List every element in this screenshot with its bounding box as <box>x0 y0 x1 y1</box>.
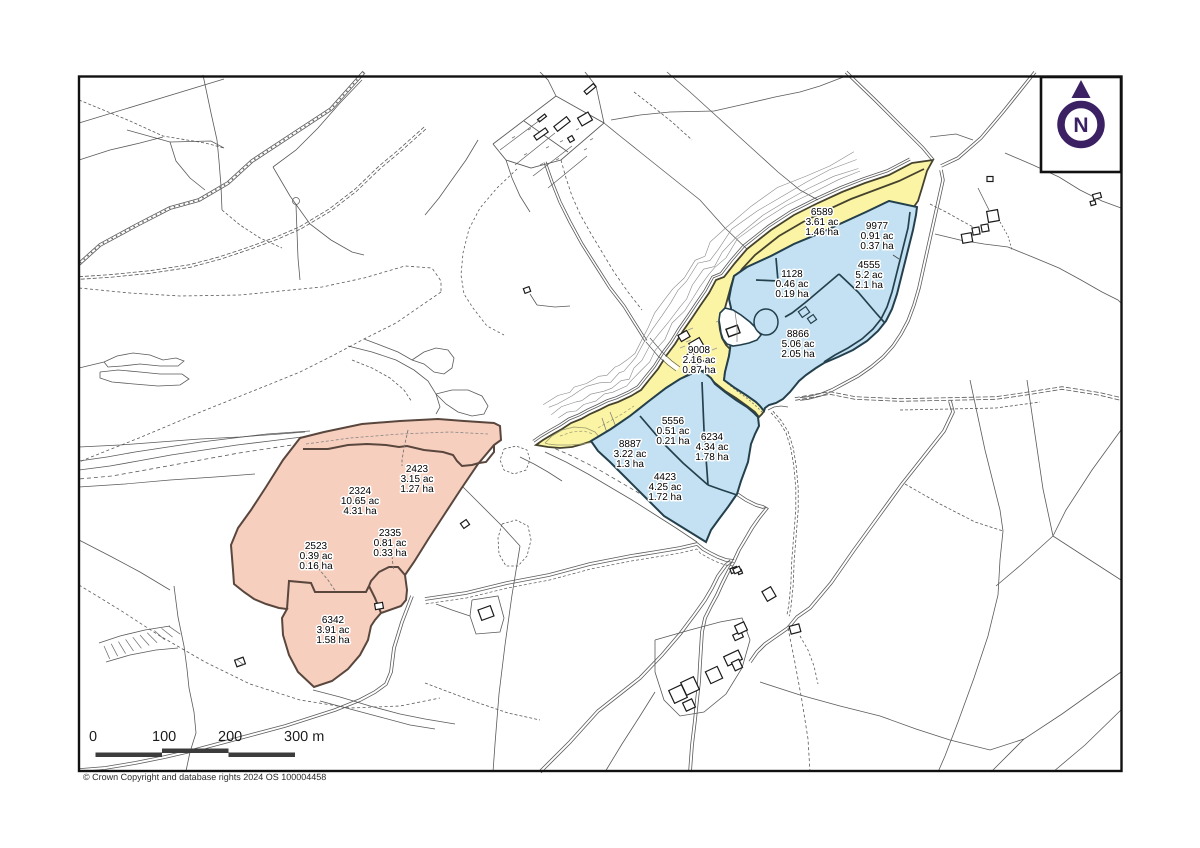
svg-text:300 m: 300 m <box>284 729 324 745</box>
svg-text:100: 100 <box>152 729 176 745</box>
svg-text:45555.2 ac2.1 ha: 45555.2 ac2.1 ha <box>855 260 883 291</box>
svg-text:0: 0 <box>89 729 97 745</box>
svg-text:© Crown Copyright and database: © Crown Copyright and database rights 20… <box>83 772 326 782</box>
svg-text:N: N <box>1073 114 1088 137</box>
svg-text:200: 200 <box>218 729 242 745</box>
